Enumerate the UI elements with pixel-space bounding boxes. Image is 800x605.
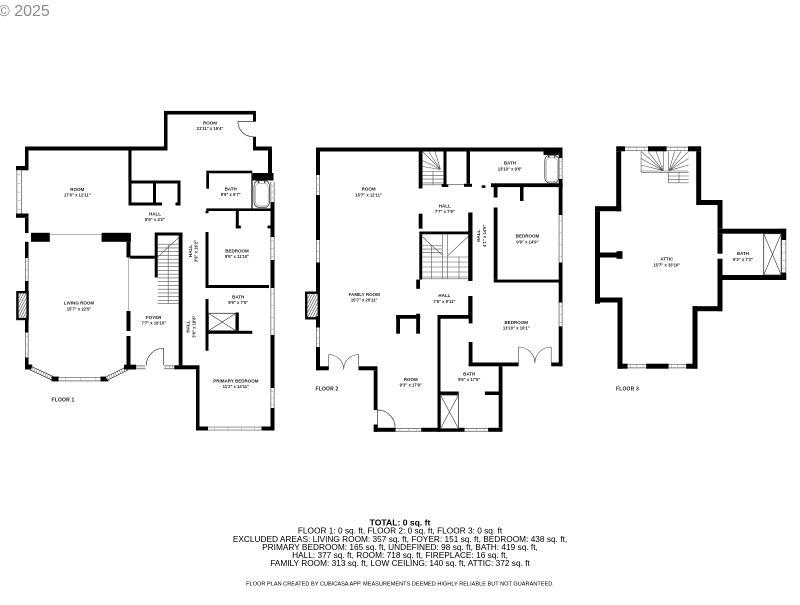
svg-text:BEDROOM: BEDROOM <box>516 234 540 239</box>
svg-text:9'6" x 17'5": 9'6" x 17'5" <box>458 377 480 382</box>
svg-text:ROOM: ROOM <box>70 187 84 192</box>
svg-text:BATH: BATH <box>737 251 749 256</box>
svg-text:ROOM: ROOM <box>203 120 217 125</box>
svg-text:9'3" x 17'9": 9'3" x 17'9" <box>400 383 422 388</box>
svg-text:HALL: HALL <box>476 229 481 241</box>
svg-text:BEDROOM: BEDROOM <box>225 248 249 253</box>
svg-text:7'7" x 7'9": 7'7" x 7'9" <box>435 209 455 214</box>
svg-text:© 2025: © 2025 <box>0 3 50 20</box>
svg-text:FLOOR PLAN CREATED BY CUBICASA: FLOOR PLAN CREATED BY CUBICASA APP. MEAS… <box>246 581 554 587</box>
svg-text:FAMILY ROOM: FAMILY ROOM <box>349 292 381 297</box>
svg-text:FLOOR 1: FLOOR 1 <box>51 398 74 404</box>
svg-text:9'9" x 7'0": 9'9" x 7'0" <box>228 300 248 305</box>
svg-text:15'7" x 12'11": 15'7" x 12'11" <box>355 192 382 197</box>
svg-text:LIVING ROOM: LIVING ROOM <box>64 301 95 306</box>
svg-text:15'7" x 33'10": 15'7" x 33'10" <box>653 262 680 267</box>
svg-text:FLOOR 2: FLOOR 2 <box>315 387 338 393</box>
svg-text:FOYER: FOYER <box>146 315 162 320</box>
svg-text:7'6" x 9'11": 7'6" x 9'11" <box>433 299 455 304</box>
svg-text:21'11" x 16'4": 21'11" x 16'4" <box>197 126 224 131</box>
svg-text:ROOM: ROOM <box>362 187 376 192</box>
svg-text:BATH: BATH <box>225 187 237 192</box>
svg-text:3'9" x 16'2": 3'9" x 16'2" <box>194 240 199 262</box>
svg-text:13'10" x 10'1": 13'10" x 10'1" <box>503 326 530 331</box>
svg-text:HALL: HALL <box>188 245 193 257</box>
svg-text:9'3" x 7'3": 9'3" x 7'3" <box>733 257 753 262</box>
svg-text:ATTIC: ATTIC <box>660 257 674 262</box>
svg-text:HALL: HALL <box>439 204 451 209</box>
svg-text:BATH: BATH <box>463 371 475 376</box>
svg-text:4'1" x 14'9": 4'1" x 14'9" <box>482 225 487 247</box>
svg-text:9'9" x 11'10": 9'9" x 11'10" <box>225 254 249 259</box>
svg-text:BATH: BATH <box>504 161 516 166</box>
svg-text:7'7" x 16'10": 7'7" x 16'10" <box>142 321 167 326</box>
svg-text:11'2" x 14'11": 11'2" x 14'11" <box>223 384 249 389</box>
svg-text:9'9" x 14'9": 9'9" x 14'9" <box>516 239 538 244</box>
svg-text:HALL: HALL <box>186 320 191 332</box>
svg-text:PRIMARY BEDROOM: PRIMARY BEDROOM <box>213 379 259 384</box>
svg-text:9'9" x 5'7": 9'9" x 5'7" <box>221 192 241 197</box>
svg-text:HALL: HALL <box>438 293 450 298</box>
svg-text:FLOOR 3: FLOOR 3 <box>616 387 639 393</box>
svg-text:8'6" x 4'2": 8'6" x 4'2" <box>145 217 165 222</box>
svg-text:13'10" x 9'6": 13'10" x 9'6" <box>498 166 523 171</box>
svg-text:FAMILY ROOM: 313 sq. ft, LOW C: FAMILY ROOM: 313 sq. ft, LOW CEILING: 14… <box>270 558 530 568</box>
svg-text:BATH: BATH <box>232 294 244 299</box>
svg-text:17'0" x 12'11": 17'0" x 12'11" <box>64 193 91 198</box>
svg-text:ROOM: ROOM <box>404 377 418 382</box>
svg-text:15'7" x 22'5": 15'7" x 22'5" <box>67 306 92 311</box>
svg-text:3'9" x 16'8": 3'9" x 16'8" <box>191 315 196 337</box>
svg-text:BEDROOM: BEDROOM <box>505 320 529 325</box>
svg-text:HALL: HALL <box>149 211 161 216</box>
svg-text:15'7" x 20'11": 15'7" x 20'11" <box>351 298 378 303</box>
